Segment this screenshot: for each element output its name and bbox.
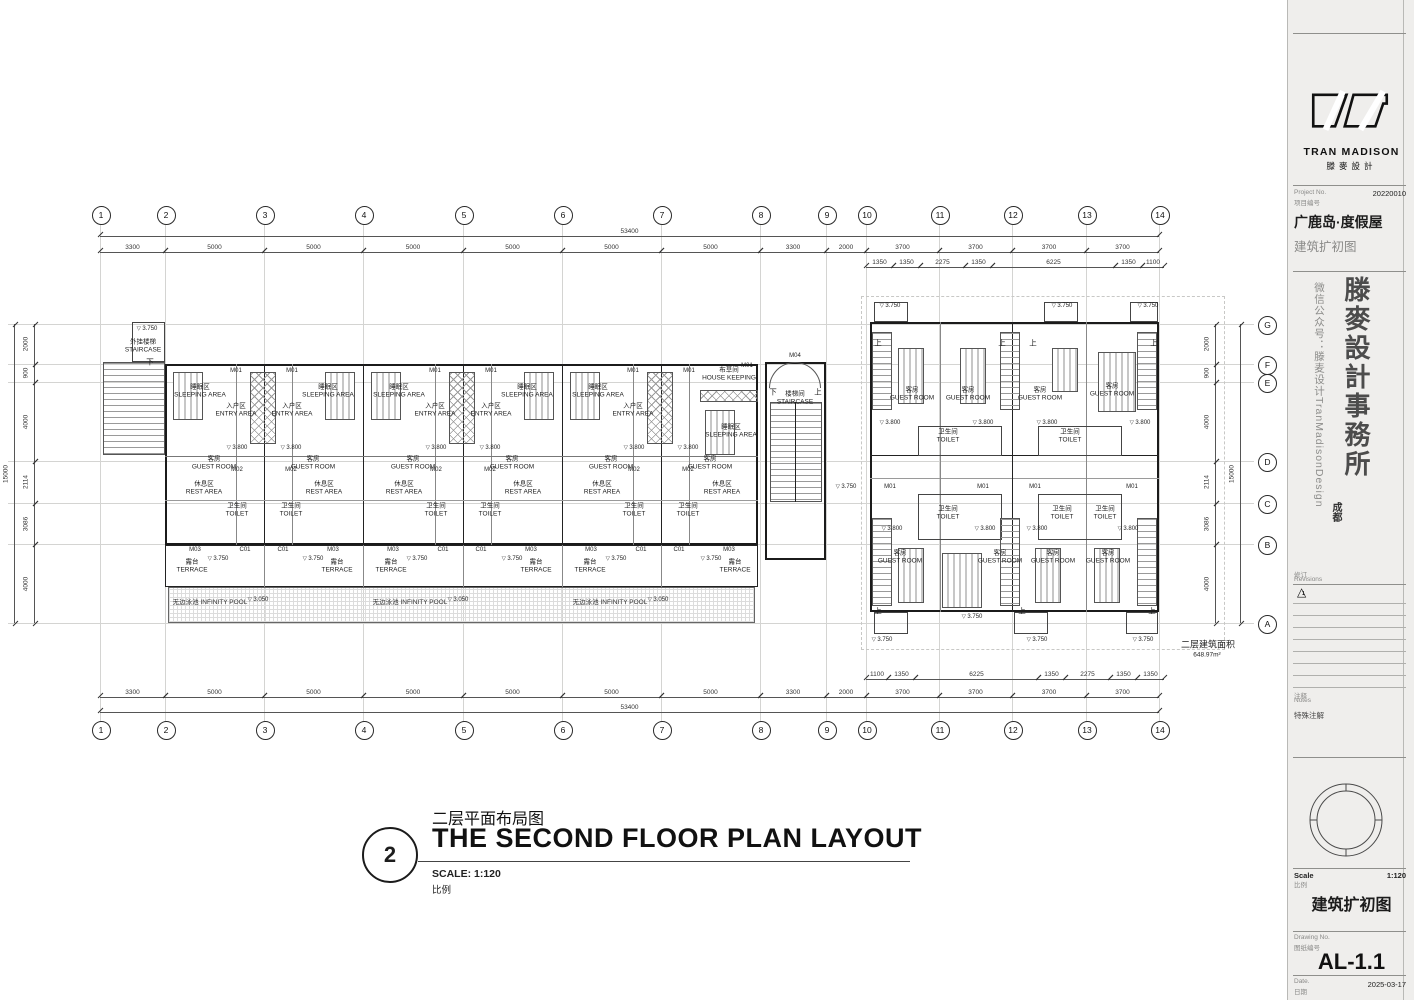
dimension: 3700 bbox=[939, 252, 1012, 253]
dimension: 53400 bbox=[100, 712, 1159, 713]
column-bubble-bottom: 11 bbox=[931, 721, 950, 740]
plan-label: M02 bbox=[430, 467, 442, 473]
column-bubble-top: 3 bbox=[256, 206, 275, 225]
revision-row bbox=[1293, 615, 1406, 616]
dimension: 2114 bbox=[1215, 461, 1216, 503]
revision-row bbox=[1293, 687, 1406, 688]
plan-label: 3.800 bbox=[880, 420, 901, 426]
column-bubble-bottom: 2 bbox=[157, 721, 176, 740]
plan-label: 下 bbox=[146, 357, 154, 368]
plan-label: 卫生间 TOILET bbox=[937, 429, 960, 446]
project-no-value: 20220010 bbox=[1373, 189, 1406, 198]
plan-label: 3.750 bbox=[606, 556, 627, 562]
column-bubble-top: 2 bbox=[157, 206, 176, 225]
revision-row bbox=[1293, 663, 1406, 664]
plan-label: M02 bbox=[682, 467, 694, 473]
dimension: 3300 bbox=[760, 252, 826, 253]
drawing-no-label: Drawing No. bbox=[1294, 934, 1330, 941]
dimension: 2114 bbox=[34, 461, 35, 503]
column-bubble-top: 1 bbox=[92, 206, 111, 225]
dimension: 1350 bbox=[965, 267, 992, 268]
plan-label: 客房 GUEST ROOM bbox=[291, 456, 335, 473]
plan-label: 3.750 bbox=[1052, 303, 1073, 309]
plan-label: 露台 TERRACE bbox=[520, 559, 551, 576]
plan-label: 睡眠区 SLEEPING AREA bbox=[174, 384, 226, 401]
plan-label: 客房 GUEST ROOM bbox=[1090, 383, 1134, 400]
dimension: 3700 bbox=[939, 697, 1012, 698]
column-bubble-top: 5 bbox=[455, 206, 474, 225]
column-bubble-top: 9 bbox=[818, 206, 837, 225]
plan-label: M02 bbox=[231, 467, 243, 473]
dimension: 5000 bbox=[463, 252, 562, 253]
plan-label: 上 bbox=[874, 338, 882, 349]
column-bubble-top: 10 bbox=[858, 206, 877, 225]
plan-label: 上 bbox=[1150, 338, 1158, 349]
plan-label: 3.800 bbox=[1118, 526, 1139, 532]
dimension: 2275 bbox=[1065, 679, 1110, 680]
plan-label: 无边泳池 INFINITY POOL bbox=[373, 596, 448, 606]
plan-label: 卫生间 TOILET bbox=[1094, 506, 1117, 523]
plan-label: M02 bbox=[285, 467, 297, 473]
toilet-block bbox=[918, 426, 1002, 456]
plan-label: 3.800 bbox=[281, 445, 302, 451]
plan-label: 客房 GUEST ROOM bbox=[1086, 550, 1130, 567]
dimension: 1350 bbox=[893, 267, 920, 268]
plan-label: 3.750 bbox=[962, 614, 983, 620]
column-bubble-bottom: 8 bbox=[752, 721, 771, 740]
infinity-pool bbox=[168, 587, 755, 623]
plan-label: M01 bbox=[627, 368, 639, 374]
plan-label: 睡眠区 SLEEPING AREA bbox=[501, 384, 553, 401]
plan-label: 卫生间 TOILET bbox=[1059, 429, 1082, 446]
plan-label: 无边泳池 INFINITY POOL bbox=[573, 596, 648, 606]
partition bbox=[870, 478, 1159, 479]
title-underline bbox=[418, 861, 910, 862]
dimension: 2000 bbox=[826, 252, 866, 253]
terrace-divider bbox=[562, 545, 563, 587]
plan-label: 648.97m² bbox=[1193, 652, 1220, 659]
dimension: 3700 bbox=[1086, 252, 1159, 253]
dimension: 4000 bbox=[1215, 382, 1216, 461]
plan-label: M01 bbox=[977, 484, 989, 490]
row-bubble: G bbox=[1258, 316, 1277, 335]
plan-label: 楼梯间 STAIRCASE bbox=[777, 391, 813, 408]
divider bbox=[1293, 271, 1406, 272]
plan-label: C01 bbox=[475, 547, 486, 553]
divider bbox=[1293, 33, 1406, 34]
dimension: 3700 bbox=[866, 252, 939, 253]
plan-label: 入户区 ENTRY AREA bbox=[272, 403, 313, 420]
plan-label: M03 bbox=[189, 547, 201, 553]
partition bbox=[165, 500, 758, 501]
drawing-sheet: 11223344556677889910101111121213131414GF… bbox=[0, 0, 1414, 1000]
plan-label: 3.750 bbox=[1027, 637, 1048, 643]
dimension: 900 bbox=[1215, 364, 1216, 382]
notes-label-en: Notes bbox=[1294, 697, 1311, 704]
plan-label: M01 bbox=[429, 368, 441, 374]
column-bubble-bottom: 7 bbox=[653, 721, 672, 740]
title-block: TRAN MADISON 滕麥設計 Project No. 项目编号 20220… bbox=[1287, 0, 1414, 1000]
plan-label: 3.750 bbox=[303, 556, 324, 562]
plan-label: M03 bbox=[525, 547, 537, 553]
office-name: 滕麥設計事務所 bbox=[1338, 276, 1375, 479]
brand-name-zh: 滕麥設計 bbox=[1288, 160, 1414, 172]
north-indicator bbox=[1306, 780, 1386, 860]
plan-label: 睡眠区 SLEEPING AREA bbox=[302, 384, 354, 401]
column-bubble-bottom: 3 bbox=[256, 721, 275, 740]
row-bubble: F bbox=[1258, 356, 1277, 375]
dimension: 3700 bbox=[1012, 252, 1086, 253]
plan-label: 上 bbox=[1018, 606, 1026, 617]
plan-label: 客房 GUEST ROOM bbox=[978, 550, 1022, 567]
plan-label: 无边泳池 INFINITY POOL bbox=[173, 596, 248, 606]
wechat-account: 微信公众号：滕麦设计TranMadisonDesign bbox=[1312, 282, 1327, 508]
plan-label: 卫生间 TOILET bbox=[226, 503, 249, 520]
plan-label: 客房 GUEST ROOM bbox=[890, 387, 934, 404]
row-bubble: D bbox=[1258, 453, 1277, 472]
partition bbox=[1086, 322, 1087, 612]
revisions-label-en: Revisions bbox=[1294, 576, 1322, 583]
terrace-divider bbox=[264, 545, 265, 587]
plan-label: 卫生间 TOILET bbox=[280, 503, 303, 520]
column-bubble-top: 14 bbox=[1151, 206, 1170, 225]
plan-label: M03 bbox=[327, 547, 339, 553]
dimension: 2000 bbox=[826, 697, 866, 698]
toilet-block bbox=[918, 494, 1002, 540]
dimension: 53400 bbox=[100, 236, 1159, 237]
plan-label: C01 bbox=[673, 547, 684, 553]
drawing-scale: SCALE: 1:120 bbox=[432, 868, 501, 880]
plan-label: 上 bbox=[814, 387, 822, 398]
plan-label: 客房 GUEST ROOM bbox=[1018, 387, 1062, 404]
dimension: 5000 bbox=[165, 697, 264, 698]
plan-label: 3.800 bbox=[624, 445, 645, 451]
project-no-label-zh: 项目编号 bbox=[1294, 197, 1320, 207]
tran-madison-logo bbox=[1308, 84, 1392, 137]
plan-label: 二层建筑面积 bbox=[1181, 638, 1235, 651]
plan-label: M02 bbox=[628, 467, 640, 473]
column-bubble-top: 11 bbox=[931, 206, 950, 225]
project-no-label: Project No. bbox=[1294, 189, 1326, 196]
stair-stringer bbox=[795, 402, 796, 502]
plan-label: 上 bbox=[998, 338, 1006, 349]
plan-label: 3.750 bbox=[137, 326, 158, 332]
office-city: 成都 bbox=[1328, 502, 1343, 522]
dimension: 5000 bbox=[264, 697, 363, 698]
column-bubble-top: 7 bbox=[653, 206, 672, 225]
dimension: 1350 bbox=[1110, 679, 1137, 680]
plan-label: 3.750 bbox=[701, 556, 722, 562]
stair-treads bbox=[770, 402, 822, 502]
plan-label: 客房 GUEST ROOM bbox=[192, 456, 236, 473]
plan-label: 休息区 REST AREA bbox=[306, 481, 342, 498]
plan-label: 3.750 bbox=[208, 556, 229, 562]
housekeeping-shelf bbox=[700, 390, 758, 402]
dimension: 1350 bbox=[1137, 679, 1164, 680]
plan-label: 下 bbox=[769, 387, 777, 398]
column-bubble-bottom: 10 bbox=[858, 721, 877, 740]
dimension: 5000 bbox=[562, 252, 661, 253]
special-notes: 特殊注解 bbox=[1294, 710, 1324, 721]
divider bbox=[1293, 584, 1406, 585]
dimension: 2000 bbox=[34, 324, 35, 364]
plan-label: 3.800 bbox=[973, 420, 994, 426]
date-value: 2025-03-17 bbox=[1368, 980, 1406, 989]
plan-label: 布草间 HOUSE KEEPING bbox=[702, 367, 756, 384]
row-bubble: C bbox=[1258, 495, 1277, 514]
plan-label: 休息区 REST AREA bbox=[505, 481, 541, 498]
row-bubble: B bbox=[1258, 536, 1277, 555]
plan-label: M01 bbox=[884, 484, 896, 490]
plan-label: 露台 TERRACE bbox=[574, 559, 605, 576]
dimension: 3700 bbox=[1086, 697, 1159, 698]
row-bubble: A bbox=[1258, 615, 1277, 634]
dimension: 5000 bbox=[562, 697, 661, 698]
dimension: 2275 bbox=[920, 267, 965, 268]
date-label: Date. bbox=[1294, 978, 1310, 985]
column-bubble-bottom: 13 bbox=[1078, 721, 1097, 740]
brand-name: TRAN MADISON bbox=[1288, 146, 1414, 158]
column-bubble-bottom: 12 bbox=[1004, 721, 1023, 740]
revision-row bbox=[1293, 603, 1406, 604]
plan-label: 休息区 REST AREA bbox=[704, 481, 740, 498]
column-bubble-bottom: 6 bbox=[554, 721, 573, 740]
plan-label: 卫生间 TOILET bbox=[623, 503, 646, 520]
drawing-scale-zh: 比例 bbox=[432, 882, 451, 896]
drawing-number-bubble: 2 bbox=[362, 827, 418, 883]
plan-label: M01 bbox=[230, 368, 242, 374]
plan-label: 客房 GUEST ROOM bbox=[946, 387, 990, 404]
dimension: 1350 bbox=[1115, 267, 1142, 268]
column-grid-line bbox=[760, 224, 761, 722]
external-staircase bbox=[103, 362, 165, 455]
column-bubble-top: 12 bbox=[1004, 206, 1023, 225]
column-bubble-bottom: 1 bbox=[92, 721, 111, 740]
plan-label: 入户区 ENTRY AREA bbox=[613, 403, 654, 420]
stair-run bbox=[1137, 518, 1157, 606]
plan-label: M03 bbox=[723, 547, 735, 553]
plan-label: M02 bbox=[484, 467, 496, 473]
plan-label: 客房 GUEST ROOM bbox=[391, 456, 435, 473]
revision-row bbox=[1293, 627, 1406, 628]
plan-label: 3.800 bbox=[975, 526, 996, 532]
revision-row bbox=[1293, 675, 1406, 676]
terrace-divider bbox=[463, 545, 464, 587]
partition bbox=[940, 322, 941, 612]
row-bubble: E bbox=[1258, 374, 1277, 393]
column-bubble-top: 4 bbox=[355, 206, 374, 225]
scale-label-zh: 比例 bbox=[1294, 879, 1307, 889]
plan-label: 3.800 bbox=[1027, 526, 1048, 532]
dimension: 6225 bbox=[992, 267, 1115, 268]
plan-label: C01 bbox=[277, 547, 288, 553]
column-bubble-bottom: 9 bbox=[818, 721, 837, 740]
plan-label: M01 bbox=[485, 368, 497, 374]
plan-label: C01 bbox=[635, 547, 646, 553]
terrace-divider bbox=[661, 545, 662, 587]
plan-label: 露台 TERRACE bbox=[176, 559, 207, 576]
plan-label: 卫生间 TOILET bbox=[677, 503, 700, 520]
dimension: 5000 bbox=[463, 697, 562, 698]
plan-label: M03 bbox=[585, 547, 597, 553]
divider bbox=[1293, 931, 1406, 932]
plan-label: 入户区 ENTRY AREA bbox=[415, 403, 456, 420]
plan-label: 3.800 bbox=[678, 445, 699, 451]
column-bubble-top: 6 bbox=[554, 206, 573, 225]
plan-label: 3.800 bbox=[1130, 420, 1151, 426]
drawing-number: AL-1.1 bbox=[1288, 949, 1414, 975]
dimension: 1350 bbox=[888, 679, 915, 680]
terrace-strip bbox=[165, 545, 758, 587]
date-label-zh: 日期 bbox=[1294, 986, 1307, 996]
plan-label: 3.750 bbox=[407, 556, 428, 562]
dimension: 5000 bbox=[165, 252, 264, 253]
dimension: 5000 bbox=[363, 252, 463, 253]
stage-title: 建筑扩初图 bbox=[1288, 891, 1414, 915]
column-grid-line bbox=[826, 224, 827, 722]
plan-label: 3.750 bbox=[502, 556, 523, 562]
dimension: 3086 bbox=[1215, 503, 1216, 544]
plan-label: 3.750 bbox=[1138, 303, 1159, 309]
divider bbox=[1293, 185, 1406, 186]
revision-row bbox=[1293, 639, 1406, 640]
plan-label: 上 bbox=[1029, 338, 1037, 349]
plan-label: C01 bbox=[437, 547, 448, 553]
column-bubble-bottom: 14 bbox=[1151, 721, 1170, 740]
plan-label: 3.750 bbox=[836, 484, 857, 490]
plan-label: 外挂楼梯 STAIRCASE bbox=[125, 339, 161, 356]
divider bbox=[1293, 757, 1406, 758]
plan-label: C01 bbox=[239, 547, 250, 553]
column-bubble-bottom: 5 bbox=[455, 721, 474, 740]
plan-label: 露台 TERRACE bbox=[375, 559, 406, 576]
plan-label: 客房 GUEST ROOM bbox=[688, 456, 732, 473]
plan-label: 入户区 ENTRY AREA bbox=[216, 403, 257, 420]
partition bbox=[165, 456, 758, 457]
dimension: 3700 bbox=[1012, 697, 1086, 698]
dimension: 2000 bbox=[1215, 324, 1216, 364]
dimension: 6225 bbox=[915, 679, 1038, 680]
project-name: 广鹿岛·度假屋 bbox=[1294, 212, 1383, 232]
divider bbox=[1293, 975, 1406, 976]
plan-label: 3.050 bbox=[248, 597, 269, 603]
dimension: 4000 bbox=[34, 544, 35, 623]
dimension: 1100 bbox=[1142, 267, 1164, 268]
plan-label: 卫生间 TOILET bbox=[937, 506, 960, 523]
wall bbox=[562, 364, 563, 545]
dimension: 3300 bbox=[100, 252, 165, 253]
plan-label: 卫生间 TOILET bbox=[479, 503, 502, 520]
dimension: 15000 bbox=[1240, 324, 1241, 623]
dimension: 4000 bbox=[1215, 544, 1216, 623]
divider bbox=[1293, 868, 1406, 869]
plan-label: 3.050 bbox=[648, 597, 669, 603]
revision-row bbox=[1293, 651, 1406, 652]
scale-value: 1:120 bbox=[1387, 871, 1406, 880]
plan-label: M01 bbox=[683, 368, 695, 374]
plan-label: M01 bbox=[1126, 484, 1138, 490]
plan-label: 休息区 REST AREA bbox=[584, 481, 620, 498]
dimension: 5000 bbox=[264, 252, 363, 253]
plan-label: M01 bbox=[286, 368, 298, 374]
column-bubble-bottom: 4 bbox=[355, 721, 374, 740]
dimension: 5000 bbox=[363, 697, 463, 698]
dimension: 900 bbox=[34, 364, 35, 382]
dimension: 4000 bbox=[34, 382, 35, 461]
dimension: 5000 bbox=[661, 252, 760, 253]
dimension: 3300 bbox=[760, 697, 826, 698]
plan-label: 休息区 REST AREA bbox=[186, 481, 222, 498]
plan-label: M03 bbox=[387, 547, 399, 553]
plan-label: 客房 GUEST ROOM bbox=[1031, 550, 1075, 567]
plan-label: 露台 TERRACE bbox=[719, 559, 750, 576]
drawing-title-en: THE SECOND FLOOR PLAN LAYOUT bbox=[432, 823, 922, 854]
dimension: 3300 bbox=[100, 697, 165, 698]
dimension: 3700 bbox=[866, 697, 939, 698]
dimension: 15000 bbox=[14, 324, 15, 623]
plan-label: 3.800 bbox=[426, 445, 447, 451]
plan-label: 3.800 bbox=[480, 445, 501, 451]
bed bbox=[942, 553, 982, 608]
plan-label: 3.750 bbox=[880, 303, 901, 309]
plan-label: M04 bbox=[789, 353, 801, 359]
plan-label: 3.800 bbox=[1037, 420, 1058, 426]
plan-label: 3.750 bbox=[872, 637, 893, 643]
plan-label: 3.800 bbox=[227, 445, 248, 451]
plan-label: M01 bbox=[1029, 484, 1041, 490]
column-bubble-top: 13 bbox=[1078, 206, 1097, 225]
dimension: 5000 bbox=[661, 697, 760, 698]
dimension: 1350 bbox=[1038, 679, 1065, 680]
plan-label: 客房 GUEST ROOM bbox=[878, 550, 922, 567]
plan-label: 休息区 REST AREA bbox=[386, 481, 422, 498]
plan-label: 客房 GUEST ROOM bbox=[589, 456, 633, 473]
dimension: 3086 bbox=[34, 503, 35, 544]
plan-label: 卫生间 TOILET bbox=[425, 503, 448, 520]
plan-label: 上 bbox=[1148, 606, 1156, 617]
plan-label: 上 bbox=[874, 606, 882, 617]
column-grid-line bbox=[100, 224, 101, 722]
plan-label: 3.800 bbox=[882, 526, 903, 532]
plan-label: 睡眠区 SLEEPING AREA bbox=[705, 424, 757, 441]
plan-label: 卫生间 TOILET bbox=[1051, 506, 1074, 523]
plan-label: 3.750 bbox=[1133, 637, 1154, 643]
wall bbox=[363, 364, 364, 545]
column-bubble-top: 8 bbox=[752, 206, 771, 225]
bed bbox=[1052, 348, 1078, 392]
plan-label: 露台 TERRACE bbox=[321, 559, 352, 576]
project-stage: 建筑扩初图 bbox=[1294, 236, 1357, 255]
plan-label: 客房 GUEST ROOM bbox=[490, 456, 534, 473]
plan-label: 入户区 ENTRY AREA bbox=[471, 403, 512, 420]
plan-label: 睡眠区 SLEEPING AREA bbox=[572, 384, 624, 401]
plan-label: 3.050 bbox=[448, 597, 469, 603]
dimension: 1350 bbox=[866, 267, 893, 268]
revision-number: 1 bbox=[1302, 591, 1305, 597]
terrace-divider bbox=[363, 545, 364, 587]
plan-label: 睡眠区 SLEEPING AREA bbox=[373, 384, 425, 401]
